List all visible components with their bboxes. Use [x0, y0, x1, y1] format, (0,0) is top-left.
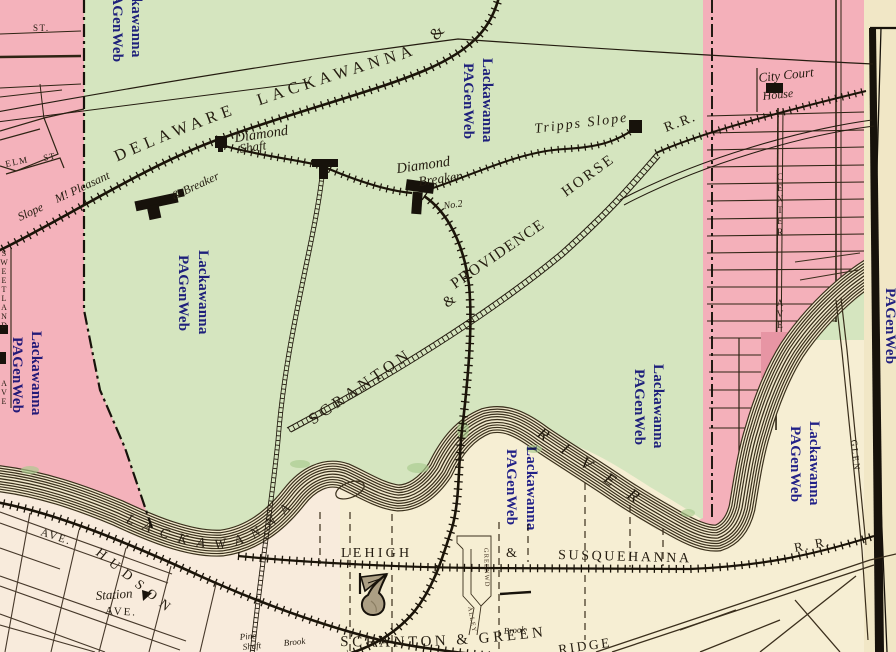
svg-text:Lackawanna: Lackawanna — [28, 331, 44, 416]
svg-text:AVE.: AVE. — [105, 605, 138, 619]
svg-text:E: E — [2, 397, 7, 406]
svg-text:A: A — [1, 379, 7, 388]
svg-text:L: L — [2, 294, 7, 303]
svg-text:E: E — [777, 183, 783, 193]
svg-text:Brook: Brook — [503, 624, 526, 636]
svg-text:S: S — [2, 249, 6, 258]
svg-text:V: V — [777, 309, 784, 319]
svg-text:V: V — [1, 388, 7, 397]
svg-text:Lackawanna: Lackawanna — [523, 446, 539, 531]
svg-text:E: E — [2, 276, 7, 285]
svg-text:E: E — [777, 216, 783, 226]
svg-text:PAGenWeb: PAGenWeb — [503, 449, 519, 525]
svg-text:ST.: ST. — [33, 23, 50, 33]
svg-text:PAGenWeb: PAGenWeb — [882, 288, 896, 364]
svg-text:W: W — [0, 258, 8, 267]
svg-text:R: R — [777, 227, 783, 237]
svg-text:PAGenWeb: PAGenWeb — [787, 426, 803, 502]
svg-text:LEHIGH: LEHIGH — [341, 546, 412, 561]
svg-text:T: T — [2, 285, 7, 294]
svg-text:Lackawanna: Lackawanna — [806, 421, 822, 506]
svg-text:E: E — [777, 320, 783, 330]
svg-text:Lackawanna: Lackawanna — [128, 0, 144, 58]
svg-text:PAGenWeb: PAGenWeb — [460, 63, 476, 139]
svg-text:PAGenWeb: PAGenWeb — [631, 369, 647, 445]
svg-text:A: A — [1, 303, 7, 312]
svg-text:D: D — [1, 321, 7, 330]
svg-text:A: A — [777, 298, 784, 308]
svg-text:&: & — [506, 546, 517, 561]
svg-text:C: C — [777, 172, 783, 182]
svg-text:PAGenWeb: PAGenWeb — [109, 0, 125, 62]
svg-text:Lackawanna: Lackawanna — [479, 58, 495, 143]
svg-text:Station: Station — [95, 585, 133, 603]
svg-text:N: N — [1, 312, 7, 321]
svg-text:T: T — [777, 205, 783, 215]
svg-text:Lackawanna: Lackawanna — [650, 364, 666, 449]
svg-text:PAGenWeb: PAGenWeb — [175, 255, 191, 331]
svg-text:GREENWD: GREENWD — [482, 548, 490, 588]
svg-text:Lackawanna: Lackawanna — [195, 250, 211, 335]
svg-text:PAGenWeb: PAGenWeb — [9, 337, 25, 413]
svg-text:E: E — [2, 267, 7, 276]
svg-text:Shaft: Shaft — [242, 640, 262, 652]
svg-text:N: N — [777, 194, 784, 204]
